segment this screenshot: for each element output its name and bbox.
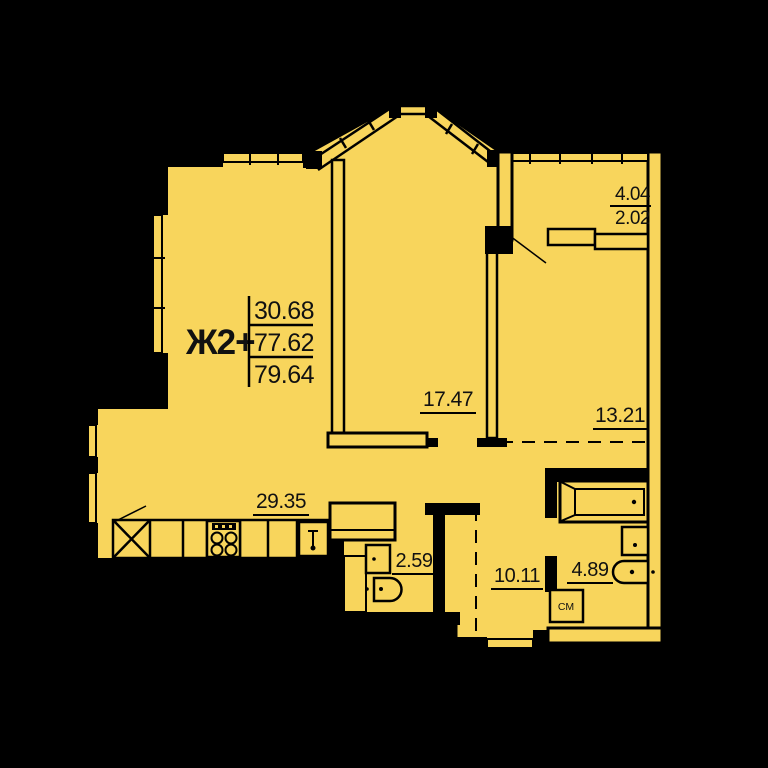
label-kitchen-living: 29.35 [256,490,306,513]
wall-center-bottom [328,433,427,447]
window-loggia [512,153,648,161]
label-apartment-type: Ж2+ [185,323,255,362]
label-balcony-full: 4.04 [615,184,651,205]
kitchen-sink-icon [299,522,328,556]
label-room-13: 13.21 [595,404,645,427]
entrance-threshold [487,639,533,648]
loggia-sill-2 [595,234,648,249]
wall-left-center [332,160,344,440]
label-hallway: 10.11 [494,565,540,587]
window-left-bump-2 [88,473,96,523]
label-washing-machine: СМ [558,601,574,613]
window-top-left [223,153,303,162]
label-balcony-counted: 2.02 [615,208,650,229]
label-area-total: 77.62 [254,329,314,357]
balcony-area-label: 4.04 2.02 [610,184,651,229]
bathroom-washbasin-icon [622,527,648,555]
wc-furring [344,556,366,612]
bathtub-icon [560,481,648,522]
floor-plan: Ж2+ 30.68 77.62 79.64 17.47 13.21 29.35 … [0,0,768,768]
window-left-bump-1 [88,425,96,457]
wall-center-right [487,250,497,438]
stove-icon [207,521,240,557]
label-wc: 2.59 [396,550,433,572]
wc-washbasin-icon [366,545,390,573]
bathroom-toilet-icon [613,561,655,583]
floor-plan-canvas: Ж2+ 30.68 77.62 79.64 17.47 13.21 29.35 … [0,0,768,768]
label-bathroom: 4.89 [572,559,609,581]
window-left-upper [153,215,162,353]
label-room-17: 17.47 [423,388,473,411]
duct-shaft [330,503,395,540]
loggia-sill-1 [548,229,595,245]
area-summary-block: 30.68 77.62 79.64 [249,296,315,389]
label-area-total-balcony: 79.64 [254,361,315,389]
label-area-living: 30.68 [254,297,314,325]
